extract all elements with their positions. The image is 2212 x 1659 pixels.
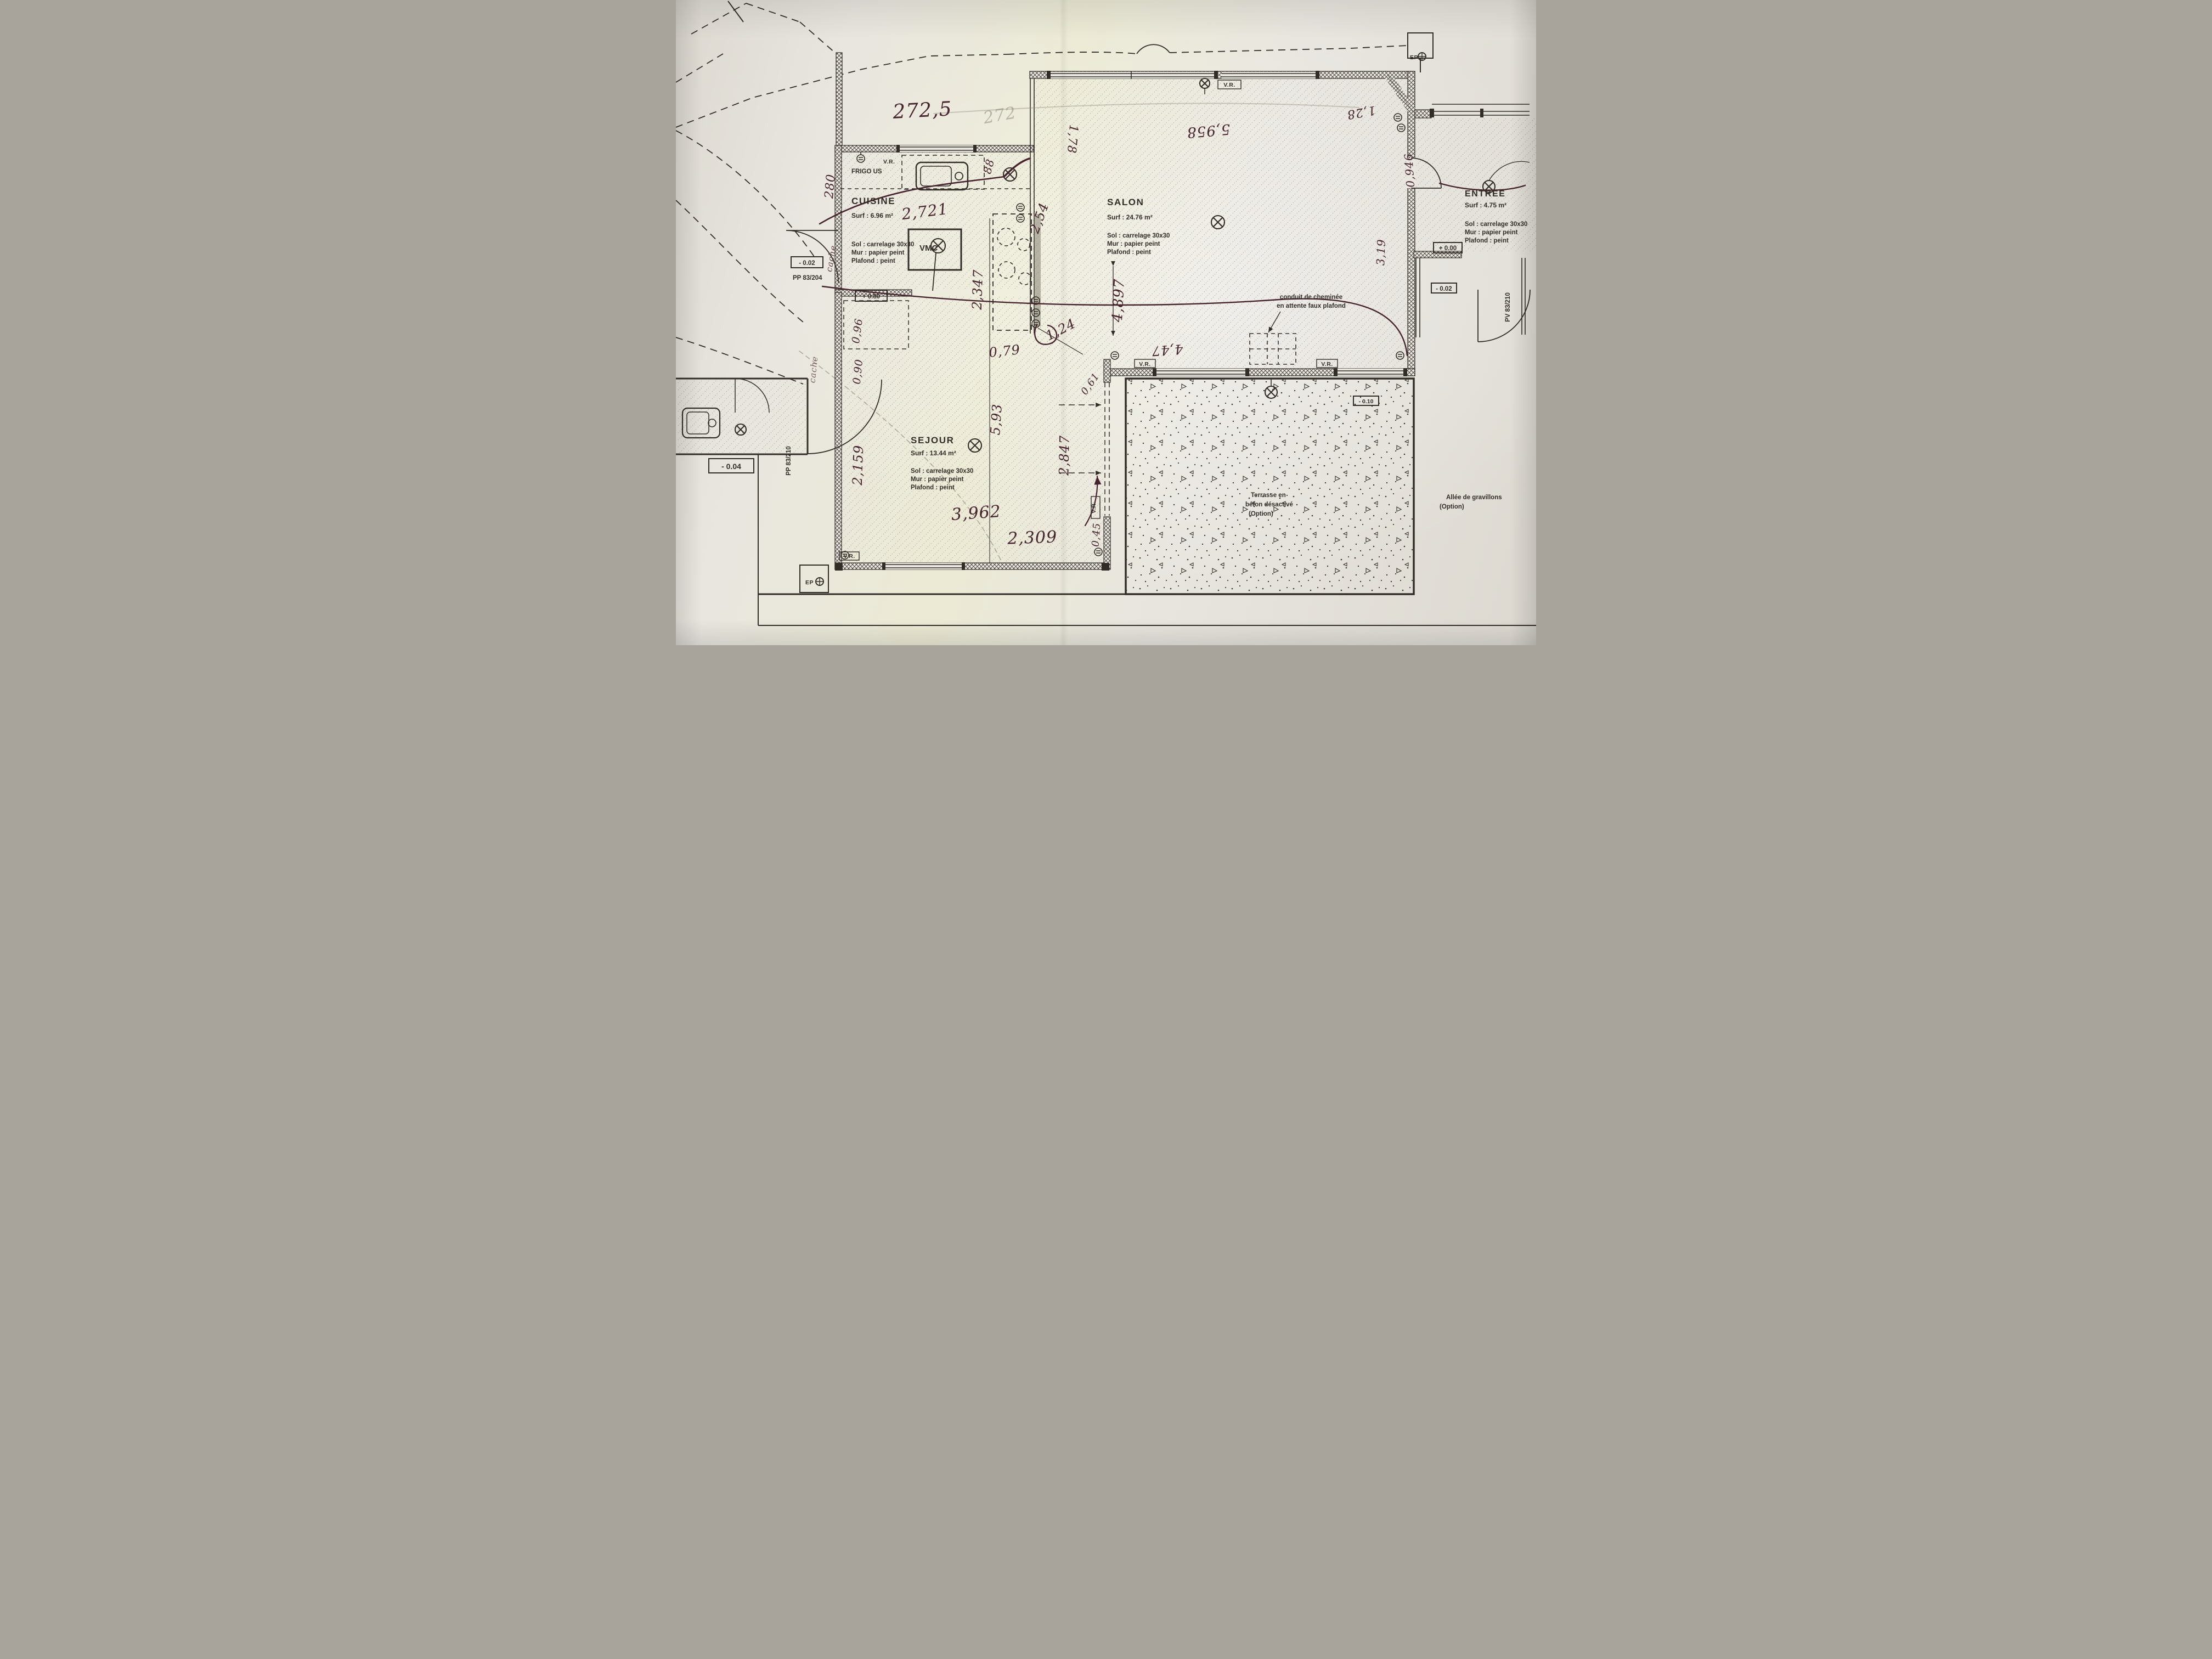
vr-label-sejour-bottom: V.R. bbox=[843, 553, 855, 560]
level-entree: + 0.00 bbox=[1439, 245, 1457, 252]
door-ref-pp204: PP 83/204 bbox=[793, 275, 822, 281]
hw-dim-3962: 3,962 bbox=[951, 502, 1002, 524]
floor-plan-drawing: FRIGO US CUISINE Surf : 6.96 m² Sol : ca… bbox=[676, 0, 1536, 645]
room-mur-sejour: Mur : papier peint bbox=[911, 476, 964, 483]
room-mur-cuisine: Mur : papier peint bbox=[851, 250, 905, 256]
level-cuisine: + 0.80 bbox=[862, 294, 880, 300]
room-plafond-cuisine: Plafond : peint bbox=[851, 258, 895, 264]
hw-dim-2847: 2,847 bbox=[1056, 435, 1072, 476]
hw-dim-593: 5,93 bbox=[988, 403, 1005, 436]
room-surf-salon: Surf : 24.76 m² bbox=[1107, 213, 1153, 221]
hw-dim-319: 3,19 bbox=[1374, 239, 1388, 266]
room-sol-cuisine: Sol : carrelage 30x30 bbox=[851, 241, 914, 248]
hw-dim-0946: 0,946 bbox=[1402, 153, 1417, 188]
vr-label-salon-top: V.R. bbox=[1223, 82, 1235, 88]
hw-dim-2347: 2,347 bbox=[969, 269, 986, 311]
terrace-note-line2: béton désactivé bbox=[1245, 501, 1293, 508]
terrace-note-line1: Terrasse en bbox=[1251, 492, 1286, 499]
room-sol-sejour: Sol : carrelage 30x30 bbox=[911, 468, 973, 475]
boundary-bump bbox=[1137, 44, 1170, 54]
room-sol-entree: Sol : carrelage 30x30 bbox=[1465, 221, 1527, 228]
room-sol-salon: Sol : carrelage 30x30 bbox=[1107, 233, 1170, 239]
room-name-entree: ENTREE bbox=[1465, 189, 1506, 199]
room-surf-sejour: Surf : 13.44 m² bbox=[911, 449, 956, 457]
room-surf-entree: Surf : 4.75 m² bbox=[1465, 201, 1506, 209]
hw-dim-178: 1,78 bbox=[1064, 124, 1081, 154]
level-right: - 0.02 bbox=[1436, 286, 1452, 292]
chimney-note-line2: en attente faux plafond bbox=[1277, 303, 1346, 309]
frigo-label: FRIGO US bbox=[851, 168, 882, 175]
hw-dim-280: 280 bbox=[822, 173, 838, 200]
boundary-tick bbox=[728, 1, 743, 22]
terrace bbox=[1126, 379, 1414, 594]
door-ref-pp210: PP 83/210 bbox=[786, 446, 792, 476]
room-name-sejour: SEJOUR bbox=[911, 435, 955, 445]
ep-label-top: EP bbox=[1410, 54, 1418, 61]
hw-dim-2159: 2,159 bbox=[850, 444, 867, 486]
floor-plan-photo: FRIGO US CUISINE Surf : 6.96 m² Sol : ca… bbox=[676, 0, 1536, 645]
room-plafond-sejour: Plafond : peint bbox=[911, 484, 955, 491]
vr-label-salon-bottom-left: V.R. bbox=[1139, 361, 1150, 368]
hw-dim-447: 4,47 bbox=[1151, 341, 1184, 359]
hw-dim-2309: 2,309 bbox=[1007, 527, 1058, 548]
hw-dim-045: 0,45 bbox=[1090, 522, 1103, 547]
room-surf-cuisine: Surf : 6.96 m² bbox=[851, 212, 893, 219]
level-annex: - 0.04 bbox=[721, 462, 741, 471]
vr-label-kitchen: V.R. bbox=[883, 159, 895, 165]
gravel-path-note-line2: (Option) bbox=[1440, 504, 1464, 510]
door-ref-pv210: PV 83/210 bbox=[1505, 292, 1511, 322]
room-mur-salon: Mur : papier peint bbox=[1107, 241, 1160, 247]
vr-label-sejour-bay: V.R. bbox=[1091, 501, 1097, 513]
room-name-salon: SALON bbox=[1107, 197, 1144, 207]
vmc-label: VMC bbox=[919, 244, 938, 253]
room-mur-entree: Mur : papier peint bbox=[1465, 229, 1518, 236]
hw-note-cache-2: cache bbox=[808, 356, 820, 383]
room-plafond-entree: Plafond : peint bbox=[1465, 238, 1509, 244]
room-plafond-salon: Plafond : peint bbox=[1107, 249, 1151, 256]
hw-dim-272-5: 272,5 bbox=[891, 98, 952, 123]
chimney-note-line1: conduit de cheminée bbox=[1280, 294, 1342, 301]
ep-label-bottom: EP bbox=[805, 579, 814, 586]
room-name-cuisine: CUISINE bbox=[851, 196, 895, 206]
terrace-note-line3: (Option) bbox=[1249, 511, 1273, 517]
vr-label-salon-bottom-right: V.R. bbox=[1321, 361, 1333, 368]
hw-dim-272-pencil: 272 bbox=[981, 103, 1018, 128]
level-terrace: - 0.10 bbox=[1359, 398, 1374, 405]
gravel-path-note-line1: Allée de gravillons bbox=[1446, 494, 1502, 501]
hw-dim-4897: 4,897 bbox=[1109, 278, 1128, 323]
hw-dim-079: 0,79 bbox=[988, 342, 1021, 360]
level-left: - 0.02 bbox=[799, 260, 815, 267]
